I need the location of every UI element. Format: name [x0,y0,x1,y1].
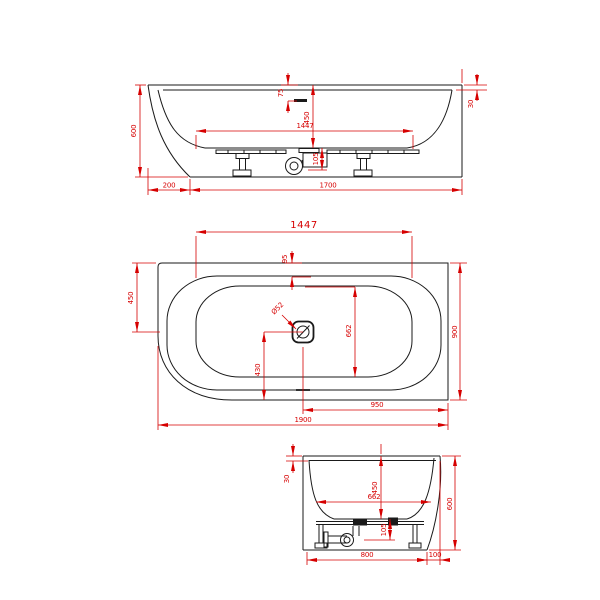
dim-front-overflow-offset: 75 [277,89,285,98]
dim-plan-rim-width: 95 [281,255,289,264]
front-foot-right [354,154,372,177]
dim-plan-width: 900 [451,326,459,339]
front-foot-left [233,154,251,177]
dim-end-height: 600 [446,498,454,511]
end-foot-right [409,525,421,548]
dim-plan-inner-width: 662 [345,325,353,338]
dim-front-height: 600 [130,125,138,138]
plan-view: 1447 450 900 95 Ø52 662 [127,220,467,430]
plan-dimensions: 1447 450 900 95 Ø52 662 [127,220,467,430]
dim-front-rim-overhang: 200 [163,182,176,190]
dim-end-base-width: 800 [361,551,374,559]
front-dimensions: 600 200 1700 1447 450 75 [130,69,487,195]
front-elevation-view: 600 200 1700 1447 450 75 [130,69,487,195]
dim-end-rim-overhang: 100 [429,551,442,559]
end-foot-left [315,525,327,548]
dim-plan-drain-diameter: Ø52 [270,301,285,316]
dim-front-drain-height: 105 [312,153,320,166]
dim-end-drain-height: 105 [380,524,388,537]
end-elevation-view: 30 450 662 600 105 800 [283,444,461,565]
front-drain-trap [286,149,328,175]
dim-plan-length: 1900 [294,416,311,424]
dim-front-rim-step: 30 [467,100,475,109]
dim-front-base-length: 1700 [319,182,336,190]
dim-end-rim-step: 30 [283,475,291,484]
dim-front-depth: 450 [303,112,311,125]
dim-plan-center-offset: 450 [127,292,135,305]
dim-plan-drain-to-front: 430 [254,364,262,377]
bathtub-technical-drawing: 600 200 1700 1447 450 75 [0,0,600,600]
front-overflow-mark [294,99,307,102]
drawing-canvas: 600 200 1700 1447 450 75 [0,0,600,600]
dim-plan-inner-length: 1447 [290,220,317,231]
dim-end-inner-width: 662 [368,493,381,501]
end-dimensions: 30 450 662 600 105 800 [283,444,461,565]
end-drain-trap [324,526,359,547]
dim-plan-drain-to-end: 950 [371,401,384,409]
